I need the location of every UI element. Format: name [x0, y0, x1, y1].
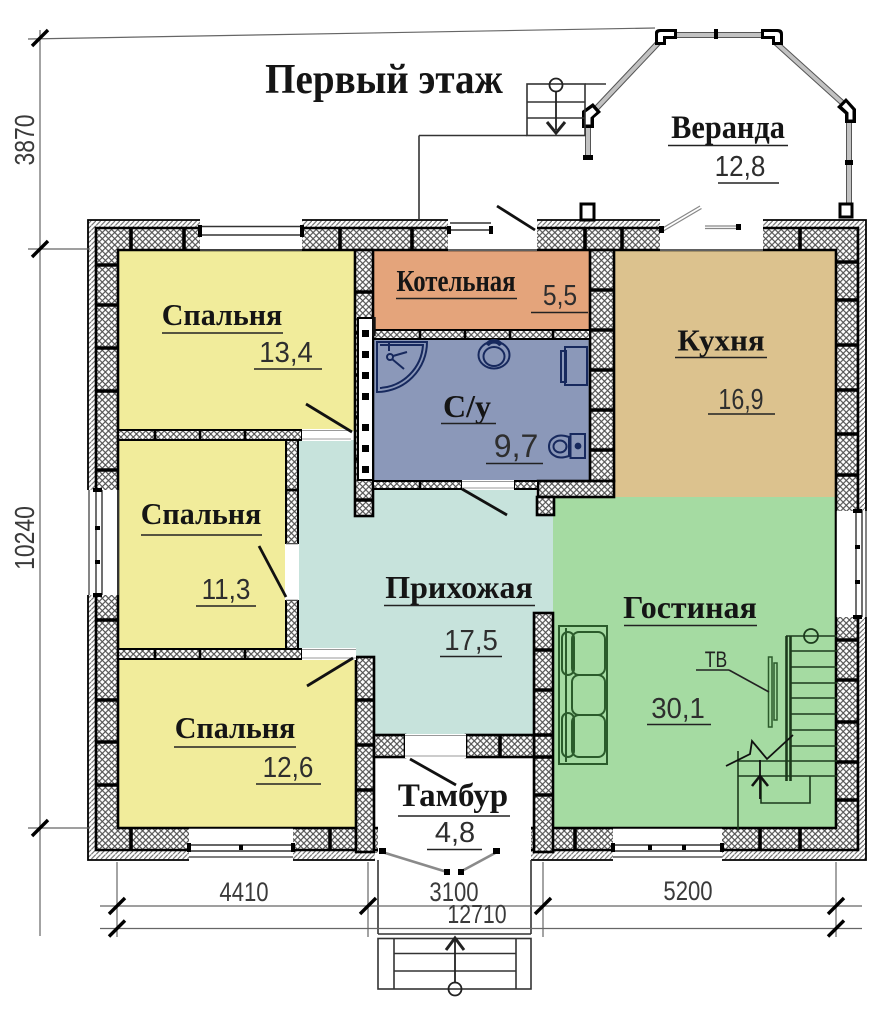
svg-text:Котельная: Котельная [396, 264, 515, 298]
svg-text:4410: 4410 [219, 878, 268, 908]
svg-text:9,7: 9,7 [494, 428, 538, 464]
svg-text:3870: 3870 [10, 114, 41, 165]
svg-text:Кухня: Кухня [677, 323, 764, 358]
svg-text:Спальня: Спальня [162, 298, 283, 333]
svg-text:5,5: 5,5 [543, 279, 577, 311]
svg-text:Спальня: Спальня [175, 711, 296, 746]
svg-text:С/у: С/у [443, 388, 491, 424]
svg-text:17,5: 17,5 [444, 623, 498, 656]
svg-text:11,3: 11,3 [202, 573, 251, 606]
svg-text:Тамбур: Тамбур [398, 778, 508, 814]
svg-text:5200: 5200 [663, 877, 712, 907]
svg-text:12,8: 12,8 [715, 150, 766, 183]
svg-text:Гостиная: Гостиная [623, 589, 757, 625]
svg-text:10240: 10240 [10, 506, 41, 570]
svg-text:Прихожая: Прихожая [385, 569, 533, 605]
svg-text:Первый этаж: Первый этаж [265, 56, 503, 103]
svg-text:12,6: 12,6 [263, 751, 314, 784]
svg-text:ТВ: ТВ [705, 648, 727, 672]
svg-text:Спальня: Спальня [141, 497, 262, 532]
svg-text:Веранда: Веранда [671, 109, 785, 145]
svg-text:16,9: 16,9 [718, 382, 763, 415]
svg-text:30,1: 30,1 [651, 691, 705, 724]
svg-text:4,8: 4,8 [435, 817, 475, 849]
svg-text:13,4: 13,4 [259, 335, 313, 368]
svg-text:12710: 12710 [447, 900, 506, 930]
